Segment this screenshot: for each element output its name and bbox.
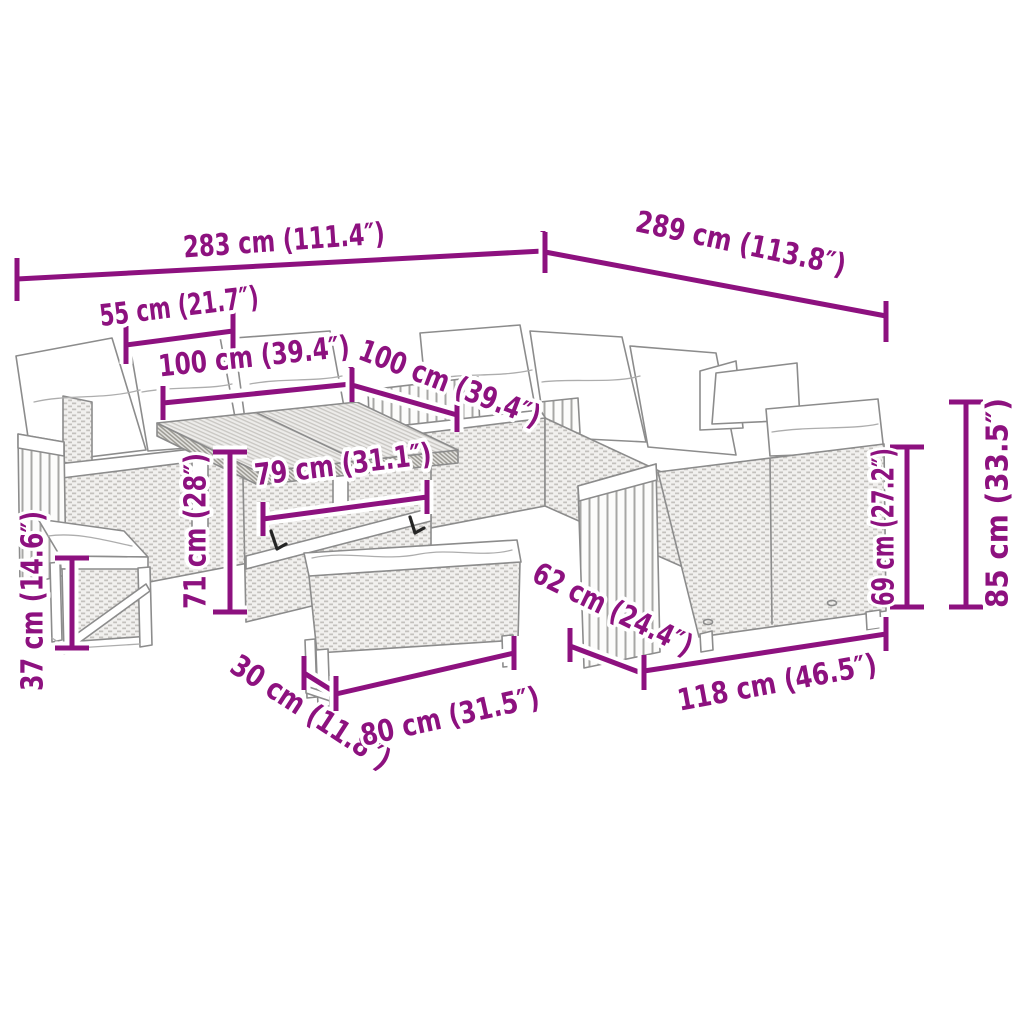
dimension-backrest-height: 69 cm (27.2″) <box>867 447 925 607</box>
dimension-bench-depth: 30 cm (11.8″) <box>224 648 397 778</box>
dimension-label: 85 cm (33.5″) <box>981 398 1016 608</box>
dimension-overall-width-right: 289 cm (113.8″) <box>545 205 886 342</box>
dimension-diagram-canvas: 283 cm (111.4″) 289 cm (113.8″) 55 cm (2… <box>0 0 1024 1024</box>
dimension-label: 80 cm (31.5″) <box>358 680 543 754</box>
sofa-foot <box>700 631 713 652</box>
dimension-overall-width-left: 283 cm (111.4″) <box>17 216 543 301</box>
furniture-dimension-diagram: 283 cm (111.4″) 289 cm (113.8″) 55 cm (2… <box>0 0 1024 1024</box>
dimension-label: 37 cm (14.6″) <box>16 511 51 691</box>
stool-back-leg <box>50 562 62 642</box>
rattan-arm-post <box>63 396 92 468</box>
stool-leg <box>138 567 152 647</box>
dimension-label: 69 cm (27.2″) <box>867 448 902 606</box>
dimension-bench-width: 80 cm (31.5″) <box>336 636 543 754</box>
sofa-foot <box>866 610 881 630</box>
bench-body <box>309 562 520 653</box>
dimension-label: 71 cm (28″) <box>179 453 214 609</box>
dimension-overall-height: 85 cm (33.5″) <box>949 398 1016 608</box>
